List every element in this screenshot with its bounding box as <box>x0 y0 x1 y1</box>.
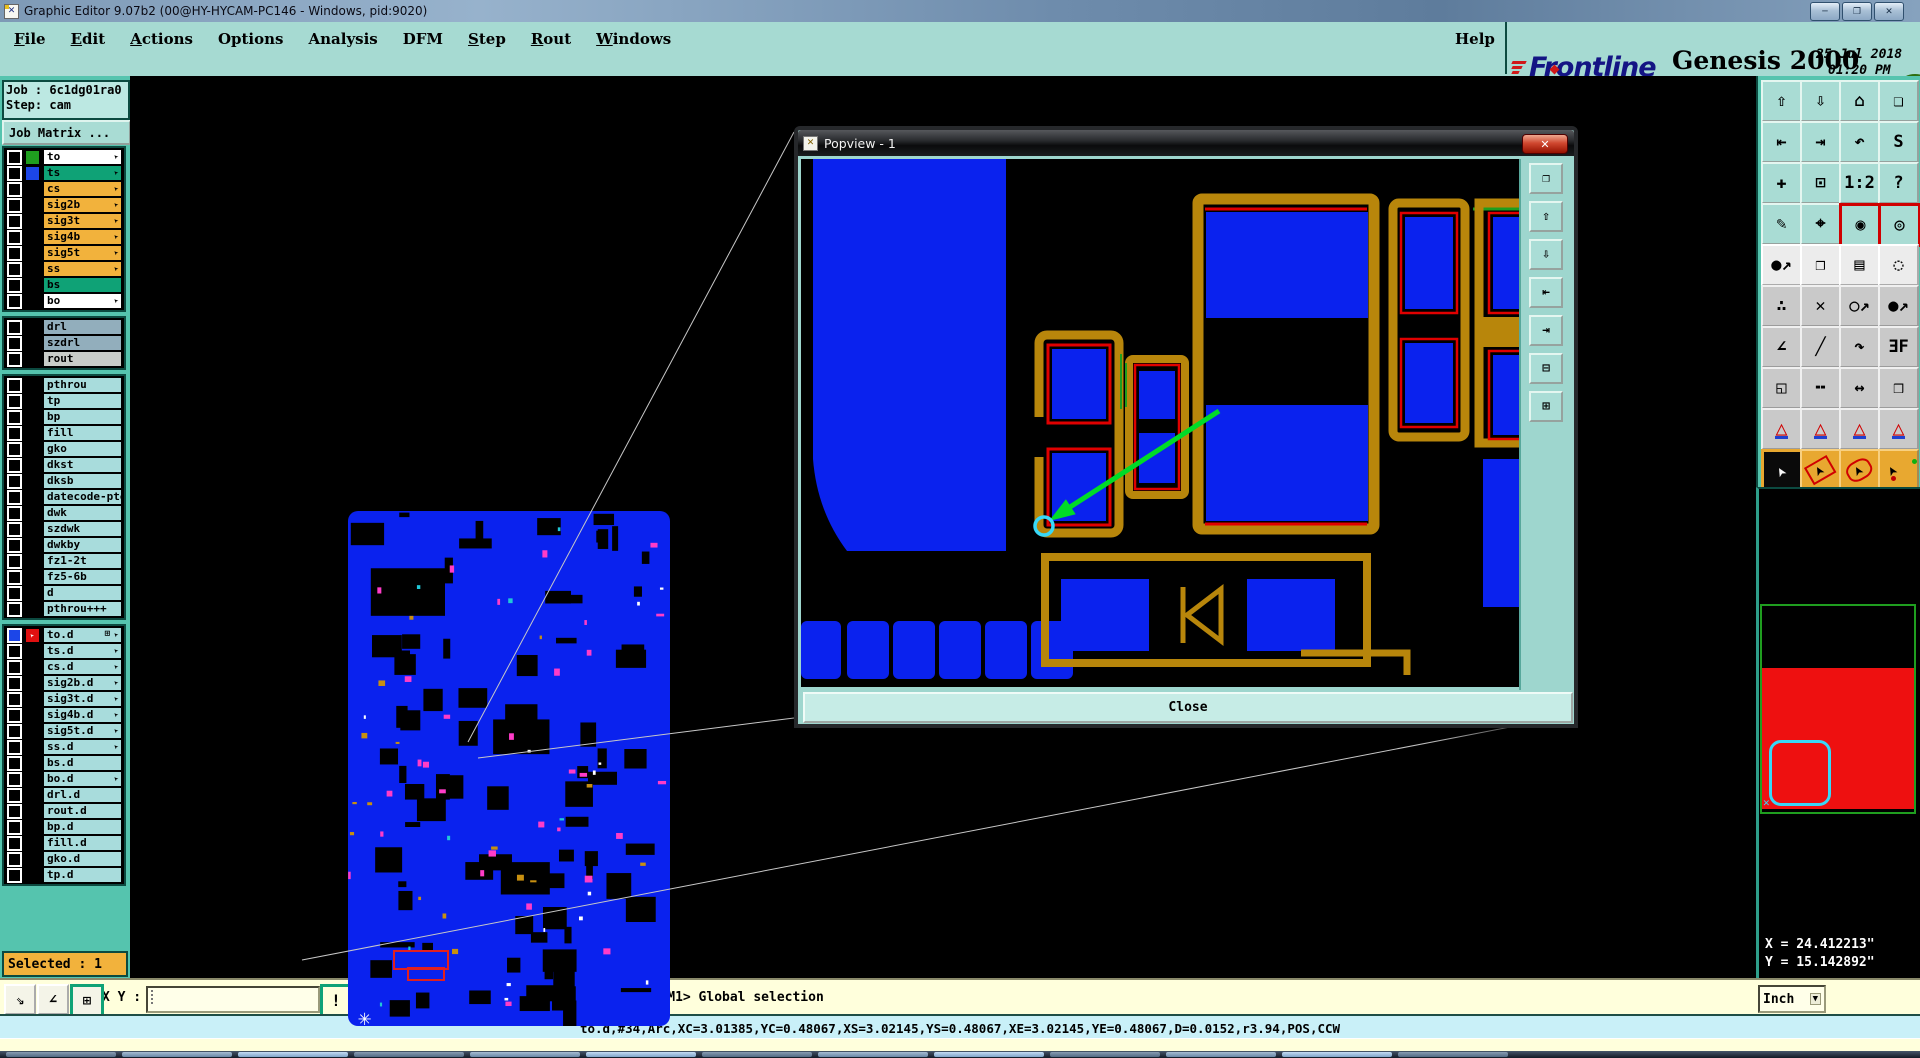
layer-label-rout.d[interactable]: rout.d <box>43 803 122 819</box>
layer-checkbox-ss.d[interactable] <box>7 740 22 755</box>
popview-popout-icon[interactable]: ❐ <box>1529 163 1563 194</box>
layer-label-fill.d[interactable]: fill.d <box>43 835 122 851</box>
layer-label-rout[interactable]: rout <box>43 351 122 367</box>
layer-row-d: d <box>4 585 124 601</box>
taskbar-button[interactable] <box>586 1052 696 1057</box>
menu-analysis[interactable]: Analysis <box>308 30 377 48</box>
popview-zoom-in-icon[interactable]: ⊞ <box>1529 391 1563 422</box>
layer-label-fz1-2t[interactable]: fz1-2t <box>43 553 122 569</box>
layer-checkbox-sig2b.d[interactable] <box>7 676 22 691</box>
fillet-ends-icon[interactable]: △ <box>1878 408 1919 450</box>
layer-swatch-to[interactable] <box>26 151 39 164</box>
fillet-up-icon[interactable]: △ <box>1761 408 1802 450</box>
layer-checkbox-dwk[interactable] <box>7 506 22 521</box>
layer-swatch-fill.d[interactable] <box>26 837 39 850</box>
layer-label-bs[interactable]: bs <box>43 277 122 293</box>
layer-swatch-bs.d[interactable] <box>26 757 39 770</box>
layer-swatch-sig2b[interactable] <box>26 199 39 212</box>
work-layer-cursor-icon: ➤ <box>28 631 37 640</box>
layer-label-sig3t[interactable]: sig3t➤ <box>43 213 122 229</box>
layer-row-datecode-pte: datecode-pte <box>4 489 124 505</box>
minimize-button[interactable]: ─ <box>1810 2 1840 21</box>
layer-row-ts.d: ts.d➤ <box>4 643 124 659</box>
layer-arrow-icon: ➤ <box>112 231 121 240</box>
feature-overview-red: ✕ <box>1762 668 1914 809</box>
application-window: ✕ Graphic Editor 9.07b2 (00@HY-HYCAM-PC1… <box>0 0 1920 1058</box>
header-date: 25 Jul 2018 <box>1816 47 1902 62</box>
snap-target-icon[interactable]: ⌖ <box>1800 203 1841 245</box>
command-bar: X Y : ! <M1> - Single feature selection … <box>0 978 1920 1016</box>
select-poly-cursor-icon[interactable]: ➤ <box>1839 449 1880 491</box>
layer-label-sig3t.d[interactable]: sig3t.d➤ <box>43 691 122 707</box>
scale-1-2-icon[interactable]: 1:2 <box>1839 162 1880 204</box>
layer-label-pthrou+++[interactable]: pthrou+++ <box>43 601 122 617</box>
layer-swatch-ss.d[interactable] <box>26 741 39 754</box>
layer-swatch-dksb[interactable] <box>26 475 39 488</box>
layer-checkbox-dkst[interactable] <box>7 458 22 473</box>
layer-checkbox-dksb[interactable] <box>7 474 22 489</box>
menubar: FileEditActionsOptionsAnalysisDFMStepRou… <box>14 30 671 48</box>
layer-checkbox-szdwk[interactable] <box>7 522 22 537</box>
step-label: Step: cam <box>6 98 126 113</box>
selected-panel: Selected : 1 <box>0 948 130 978</box>
layer-swatch-dwk[interactable] <box>26 507 39 520</box>
layer-row-sig2b.d: sig2b.d➤ <box>4 675 124 691</box>
layer-swatch-bo.d[interactable] <box>26 773 39 786</box>
select-circle-icon[interactable]: ◌ <box>1878 244 1919 286</box>
taskbar-button[interactable] <box>1166 1052 1276 1057</box>
layer-label-fill[interactable]: fill <box>43 425 122 441</box>
delete-feature-icon[interactable]: ✕ <box>1800 285 1841 327</box>
layer-swatch-drl.d[interactable] <box>26 789 39 802</box>
popview-close-x-button[interactable]: ✕ <box>1522 134 1568 154</box>
menu-rout[interactable]: Rout <box>531 30 571 48</box>
layer-checkbox-fill[interactable] <box>7 426 22 441</box>
pan-left-icon[interactable]: ⇤ <box>1761 121 1802 163</box>
layer-label-to.d[interactable]: to.d⊞➤ <box>43 627 122 643</box>
menu-file[interactable]: File <box>14 30 46 48</box>
pcb-board-thumbnail <box>348 511 670 1026</box>
layer-checkbox-sig2b[interactable] <box>7 198 22 213</box>
layer-label-sig2b[interactable]: sig2b➤ <box>43 197 122 213</box>
layer-row-drl: drl <box>4 319 124 335</box>
right-toolbar-panel: ⇧⇩⌂❏⇤⇥↶S✚⊡1:2?✎⌖◉◎●↗❐▤◌∴✕○↗●↗∠╱↷ƎF◱╍↔❒△△… <box>1756 76 1920 487</box>
layer-label-gko[interactable]: gko <box>43 441 122 457</box>
pan-right-icon[interactable]: ⇥ <box>1800 121 1841 163</box>
layer-swatch-bp.d[interactable] <box>26 821 39 834</box>
layer-label-drl.d[interactable]: drl.d <box>43 787 122 803</box>
popview-titlebar[interactable]: ✕ Popview - 1 ✕ <box>798 130 1574 156</box>
layer-label-bo[interactable]: bo➤ <box>43 293 122 309</box>
layer-checkbox-datecode-pte[interactable] <box>7 490 22 505</box>
pan-zoom-mode-icon[interactable]: ⇘ <box>4 984 36 1015</box>
os-taskbar[interactable] <box>0 1051 1920 1058</box>
layer-row-dwk: dwk <box>4 505 124 521</box>
taskbar-button[interactable] <box>1282 1052 1392 1057</box>
app-icon: ✕ <box>4 4 19 19</box>
measure-mode-icon[interactable]: ∠ <box>37 984 69 1015</box>
layer-checkbox-sig3t.d[interactable] <box>7 692 22 707</box>
layer-label-bp.d[interactable]: bp.d <box>43 819 122 835</box>
layer-arrow-icon: ➤ <box>112 183 121 192</box>
zoom-previous-icon[interactable]: ↶ <box>1839 121 1880 163</box>
home-view-icon[interactable]: ⌂ <box>1839 80 1880 122</box>
text-caret <box>151 990 153 1004</box>
origin-star-icon: ✳ <box>358 1008 371 1030</box>
layer-checkbox-tp.d[interactable] <box>7 868 22 883</box>
layer-label-ts.d[interactable]: ts.d➤ <box>43 643 122 659</box>
select-net-cursor-icon[interactable]: ➤ <box>1878 449 1919 491</box>
feature-overview-selection <box>1769 740 1831 806</box>
layer-label-szdrl[interactable]: szdrl <box>43 335 122 351</box>
paste-up-icon[interactable]: ⇧ <box>1761 80 1802 122</box>
layer-swatch-rout[interactable] <box>26 353 39 366</box>
layer-row-szdwk: szdwk <box>4 521 124 537</box>
layer-checkbox-sig5t[interactable] <box>7 246 22 261</box>
layer-row-sig4b.d: sig4b.d➤ <box>4 707 124 723</box>
layer-label-dksb[interactable]: dksb <box>43 473 122 489</box>
layer-checkbox-sig4b[interactable] <box>7 230 22 245</box>
close-button[interactable]: ✕ <box>1874 2 1904 21</box>
header-divider <box>1505 22 1507 74</box>
popview-zoom-out-icon[interactable]: ⊟ <box>1529 353 1563 384</box>
layer-swatch-tp.d[interactable] <box>26 869 39 882</box>
layer-label-to[interactable]: to➤ <box>43 149 122 165</box>
units-dropdown[interactable]: Inch ▼ <box>1758 985 1826 1013</box>
layer-checkbox-rout[interactable] <box>7 352 22 367</box>
layer-arrow-icon: ➤ <box>112 773 121 782</box>
net-endpoints-icon[interactable]: ◉ <box>1839 203 1882 247</box>
layer-label-datecode-pte[interactable]: datecode-pte <box>43 489 122 505</box>
copper-strip <box>1483 459 1519 607</box>
layer-label-szdwk[interactable]: szdwk <box>43 521 122 537</box>
taskbar-button[interactable] <box>6 1052 116 1057</box>
layer-checkbox-fz5-6b[interactable] <box>7 570 22 585</box>
layer-checkbox-ss[interactable] <box>7 262 22 277</box>
feature-overview-box: ✕ <box>1760 604 1916 814</box>
resize-feature-icon[interactable]: ○↗ <box>1839 285 1880 327</box>
layer-row-drl.d: drl.d <box>4 787 124 803</box>
layer-row-cs: cs➤ <box>4 181 124 197</box>
move-feature-icon[interactable]: ●↗ <box>1761 244 1802 286</box>
layer-checkbox-bp.d[interactable] <box>7 820 22 835</box>
layer-arrow-icon: ➤ <box>112 215 121 224</box>
layer-swatch-szdrl[interactable] <box>26 337 39 350</box>
layer-checkbox-szdrl[interactable] <box>7 336 22 351</box>
bottom-strip <box>0 1038 1920 1052</box>
layer-arrow-icon: ➤ <box>112 645 121 654</box>
layer-label-cs.d[interactable]: cs.d➤ <box>43 659 122 675</box>
layer-label-bs.d[interactable]: bs.d <box>43 755 122 771</box>
job-matrix-button[interactable]: Job Matrix ... <box>2 120 131 145</box>
layer-row-sig5t: sig5t➤ <box>4 245 124 261</box>
coordinate-input[interactable] <box>146 986 320 1013</box>
layer-swatch-bs[interactable] <box>26 279 39 292</box>
menu-dfm[interactable]: DFM <box>403 30 443 48</box>
layer-label-tp.d[interactable]: tp.d <box>43 867 122 883</box>
layer-swatch-dkst[interactable] <box>26 459 39 472</box>
taskbar-button[interactable] <box>934 1052 1044 1057</box>
layer-checkbox-dwkby[interactable] <box>7 538 22 553</box>
layer-swatch-sig4b[interactable] <box>26 231 39 244</box>
layer-group: ➤to.d⊞➤ts.d➤cs.d➤sig2b.d➤sig3t.d➤sig4b.d… <box>2 624 126 886</box>
layer-row-rout.d: rout.d <box>4 803 124 819</box>
layer-label-tp[interactable]: tp <box>43 393 122 409</box>
layer-swatch-rout.d[interactable] <box>26 805 39 818</box>
layer-label-sig2b.d[interactable]: sig2b.d➤ <box>43 675 122 691</box>
layer-row-fill: fill <box>4 425 124 441</box>
layer-swatch-cs.d[interactable] <box>26 661 39 674</box>
layer-row-rout: rout <box>4 351 124 367</box>
overview-cross-icon: ✕ <box>1763 796 1770 809</box>
toolbar-grid: ⇧⇩⌂❏⇤⇥↶S✚⊡1:2?✎⌖◉◎●↗❐▤◌∴✕○↗●↗∠╱↷ƎF◱╍↔❒△△… <box>1761 80 1916 489</box>
layer-swatch-sig3t.d[interactable] <box>26 693 39 706</box>
layer-arrow-icon: ➤ <box>112 295 121 304</box>
popview-view-up-icon[interactable]: ⇧ <box>1529 201 1563 232</box>
fit-all-icon[interactable]: ✚ <box>1761 162 1802 204</box>
copy-feature-icon[interactable]: ❐ <box>1800 244 1841 286</box>
layer-grid-icon: ⊞ <box>105 630 110 639</box>
layer-checkbox-ts[interactable] <box>7 166 22 181</box>
layer-row-gko: gko <box>4 441 124 457</box>
layer-swatch-fz1-2t[interactable] <box>26 555 39 568</box>
layer-label-drl[interactable]: drl <box>43 319 122 335</box>
layer-swatch-sig3t[interactable] <box>26 215 39 228</box>
layer-swatch-sig2b.d[interactable] <box>26 677 39 690</box>
taskbar-button[interactable] <box>470 1052 580 1057</box>
layer-arrow-icon: ➤ <box>112 677 121 686</box>
right-info-panel: ✕ X = 24.412213" Y = 15.142892" <box>1756 487 1920 980</box>
popview-pan-left-icon[interactable]: ⇤ <box>1529 277 1563 308</box>
menu-options[interactable]: Options <box>218 30 284 48</box>
layer-checkbox-drl.d[interactable] <box>7 788 22 803</box>
popview-title: Popview - 1 <box>824 136 896 151</box>
layer-arrow-icon: ➤ <box>112 151 121 160</box>
layer-label-sig5t.d[interactable]: sig5t.d➤ <box>43 723 122 739</box>
layer-swatch-ts[interactable] <box>26 167 39 180</box>
serpentine-icon[interactable]: S <box>1878 121 1919 163</box>
taskbar-button[interactable] <box>1398 1052 1508 1057</box>
layer-label-dkst[interactable]: dkst <box>43 457 122 473</box>
zoom-inside-icon[interactable]: ⊡ <box>1800 162 1841 204</box>
move-point-icon[interactable]: ●↗ <box>1878 285 1919 327</box>
query-icon[interactable]: ? <box>1878 162 1919 204</box>
layer-row-ss: ss➤ <box>4 261 124 277</box>
layer-label-d[interactable]: d <box>43 585 122 601</box>
layer-label-bp[interactable]: bp <box>43 409 122 425</box>
layer-checkbox-fill.d[interactable] <box>7 836 22 851</box>
taskbar-button[interactable] <box>354 1052 464 1057</box>
layer-checkbox-sig3t[interactable] <box>7 214 22 229</box>
layer-label-ss[interactable]: ss➤ <box>43 261 122 277</box>
layer-arrow-icon: ➤ <box>112 661 121 670</box>
layer-checkbox-tp[interactable] <box>7 394 22 409</box>
menu-windows[interactable]: Windows <box>596 30 671 48</box>
layer-checkbox-bo.d[interactable] <box>7 772 22 787</box>
layer-arrow-icon: ➤ <box>112 629 121 638</box>
logo-dashes-icon <box>1512 61 1526 74</box>
layer-checkbox-to[interactable] <box>7 150 22 165</box>
layer-swatch-to.d[interactable]: ➤ <box>26 629 39 642</box>
popview-canvas[interactable] <box>801 159 1519 687</box>
xy-label: X Y : <box>102 990 141 1005</box>
layer-group: pthroutpbpfillgkodkstdksbdatecode-ptedwk… <box>2 374 126 620</box>
layer-checkbox-bs[interactable] <box>7 278 22 293</box>
grid-windows-icon[interactable]: ⊞ <box>70 984 104 1017</box>
layer-row-pthrou+++: pthrou+++ <box>4 601 124 617</box>
fillet-both-icon[interactable]: △ <box>1800 408 1841 450</box>
corner-move-icon[interactable]: ◱ <box>1761 367 1802 409</box>
layer-arrow-icon: ➤ <box>112 725 121 734</box>
layer-sidebar: Job : 6c1dg01ra0 Step: cam Job Matrix ..… <box>0 76 130 978</box>
layer-swatch-gko[interactable] <box>26 443 39 456</box>
layer-checkbox-bs.d[interactable] <box>7 756 22 771</box>
angle-line-icon[interactable]: ∠ <box>1761 326 1802 368</box>
layer-label-dwkby[interactable]: dwkby <box>43 537 122 553</box>
layer-row-fz1-2t: fz1-2t <box>4 553 124 569</box>
menu-edit[interactable]: Edit <box>71 30 106 48</box>
layer-checkbox-ts.d[interactable] <box>7 644 22 659</box>
layer-checkbox-sig5t.d[interactable] <box>7 724 22 739</box>
restore-button[interactable]: ❐ <box>1842 2 1872 21</box>
layer-label-ts[interactable]: ts➤ <box>43 165 122 181</box>
popview-window: ✕ Popview - 1 ✕ <box>794 126 1578 728</box>
layer-checkbox-gko[interactable] <box>7 442 22 457</box>
fillet-base-icon[interactable]: △ <box>1839 408 1880 450</box>
layer-checkbox-cs.d[interactable] <box>7 660 22 675</box>
select-rect-cursor-icon[interactable]: ➤ <box>1800 449 1841 491</box>
rotate-icon[interactable]: ↷ <box>1839 326 1880 368</box>
layer-swatch-sig5t.d[interactable] <box>26 725 39 738</box>
copper-pour <box>813 159 1006 551</box>
layer-swatch-dwkby[interactable] <box>26 539 39 552</box>
layer-group: to➤ts➤cs➤sig2b➤sig3t➤sig4b➤sig5t➤ss➤bsbo… <box>2 146 126 312</box>
layer-row-pthrou: pthrou <box>4 377 124 393</box>
layer-label-sig4b.d[interactable]: sig4b.d➤ <box>43 707 122 723</box>
layer-swatch-szdwk[interactable] <box>26 523 39 536</box>
layer-list: to➤ts➤cs➤sig2b➤sig3t➤sig4b➤sig5t➤ss➤bsbo… <box>2 146 126 890</box>
popview-view-down-icon[interactable]: ⇩ <box>1529 239 1563 270</box>
layer-checkbox-pthrou[interactable] <box>7 378 22 393</box>
layer-swatch-sig5t[interactable] <box>26 247 39 260</box>
layer-arrow-icon: ➤ <box>112 199 121 208</box>
layer-swatch-fz5-6b[interactable] <box>26 571 39 584</box>
layer-swatch-cs[interactable] <box>26 183 39 196</box>
layer-swatch-tp[interactable] <box>26 395 39 408</box>
paste-down-icon[interactable]: ⇩ <box>1800 80 1841 122</box>
tile-windows-icon[interactable]: ❏ <box>1878 80 1919 122</box>
layer-swatch-fill[interactable] <box>26 427 39 440</box>
layer-label-pthrou[interactable]: pthrou <box>43 377 122 393</box>
layer-checkbox-bo[interactable] <box>7 294 22 309</box>
layer-checkbox-pthrou+++[interactable] <box>7 602 22 617</box>
layer-label-gko.d[interactable]: gko.d <box>43 851 122 867</box>
layer-row-tp: tp <box>4 393 124 409</box>
layer-label-cs[interactable]: cs➤ <box>43 181 122 197</box>
layer-row-bo.d: bo.d➤ <box>4 771 124 787</box>
taskbar-button[interactable] <box>818 1052 928 1057</box>
popview-pan-right-icon[interactable]: ⇥ <box>1529 315 1563 346</box>
diagonal-line-icon[interactable]: ╱ <box>1800 326 1841 368</box>
taskbar-button[interactable] <box>1050 1052 1160 1057</box>
layer-row-bp.d: bp.d <box>4 819 124 835</box>
layer-swatch-datecode-pte[interactable] <box>26 491 39 504</box>
layer-row-cs.d: cs.d➤ <box>4 659 124 675</box>
punch-icon[interactable]: ❒ <box>1878 367 1919 409</box>
layer-checkbox-bp[interactable] <box>7 410 22 425</box>
layer-label-sig5t[interactable]: sig5t➤ <box>43 245 122 261</box>
layer-row-bp: bp <box>4 409 124 425</box>
layer-swatch-drl[interactable] <box>26 321 39 334</box>
layer-checkbox-rout.d[interactable] <box>7 804 22 819</box>
layer-checkbox-gko.d[interactable] <box>7 852 22 867</box>
taskbar-button[interactable] <box>122 1052 232 1057</box>
layer-checkbox-d[interactable] <box>7 586 22 601</box>
layer-row-sig2b: sig2b➤ <box>4 197 124 213</box>
cursor-y-coordinate: Y = 15.142892" <box>1765 955 1875 970</box>
layer-swatch-sig4b.d[interactable] <box>26 709 39 722</box>
layer-row-bo: bo➤ <box>4 293 124 309</box>
layer-swatch-ts.d[interactable] <box>26 645 39 658</box>
cursor-x-coordinate: X = 24.412213" <box>1765 937 1875 952</box>
layer-swatch-gko.d[interactable] <box>26 853 39 866</box>
os-titlebar[interactable]: ✕ Graphic Editor 9.07b2 (00@HY-HYCAM-PC1… <box>0 0 1920 23</box>
layer-arrow-icon: ➤ <box>112 263 121 272</box>
popview-graphics <box>801 159 1519 687</box>
layer-label-sig4b[interactable]: sig4b➤ <box>43 229 122 245</box>
layer-label-bo.d[interactable]: bo.d➤ <box>43 771 122 787</box>
layer-swatch-bo[interactable] <box>26 295 39 308</box>
mirror-icon[interactable]: ƎF <box>1878 326 1919 368</box>
layer-swatch-ss[interactable] <box>26 263 39 276</box>
net-pads-icon[interactable]: ◎ <box>1878 203 1920 247</box>
layer-arrow-icon: ➤ <box>112 741 121 750</box>
popview-close-button[interactable]: Close <box>803 692 1573 723</box>
layer-swatch-pthrou[interactable] <box>26 379 39 392</box>
layer-checkbox-sig4b.d[interactable] <box>7 708 22 723</box>
layer-group: drlszdrlrout <box>2 316 126 370</box>
layer-swatch-pthrou+++[interactable] <box>26 603 39 616</box>
layer-checkbox-fz1-2t[interactable] <box>7 554 22 569</box>
menu-help[interactable]: Help <box>1455 30 1495 48</box>
break-line-icon[interactable]: ╍ <box>1800 367 1841 409</box>
layer-row-fz5-6b: fz5-6b <box>4 569 124 585</box>
ruler-icon[interactable]: ▤ <box>1839 244 1880 286</box>
app-header: FileEditActionsOptionsAnalysisDFMStepRou… <box>0 22 1920 78</box>
layer-row-szdrl: szdrl <box>4 335 124 351</box>
taskbar-button[interactable] <box>238 1052 348 1057</box>
taskbar-button[interactable] <box>702 1052 812 1057</box>
join-features-icon[interactable]: ∴ <box>1761 285 1802 327</box>
menu-actions[interactable]: Actions <box>130 30 193 48</box>
layer-row-gko.d: gko.d <box>4 851 124 867</box>
layer-row-tp.d: tp.d <box>4 867 124 883</box>
layer-swatch-d[interactable] <box>26 587 39 600</box>
draw-tools-icon[interactable]: ✎ <box>1761 203 1802 245</box>
menu-step[interactable]: Step <box>468 30 506 48</box>
layer-arrow-icon: ➤ <box>112 247 121 256</box>
measure-distance-icon[interactable]: ↔ <box>1839 367 1880 409</box>
layer-label-dwk[interactable]: dwk <box>43 505 122 521</box>
layer-checkbox-drl[interactable] <box>7 320 22 335</box>
layer-row-to: to➤ <box>4 149 124 165</box>
layer-label-ss.d[interactable]: ss.d➤ <box>43 739 122 755</box>
layer-checkbox-cs[interactable] <box>7 182 22 197</box>
layer-label-fz5-6b[interactable]: fz5-6b <box>43 569 122 585</box>
layer-row-ss.d: ss.d➤ <box>4 739 124 755</box>
layer-swatch-bp[interactable] <box>26 411 39 424</box>
layer-checkbox-to.d[interactable] <box>7 628 22 643</box>
